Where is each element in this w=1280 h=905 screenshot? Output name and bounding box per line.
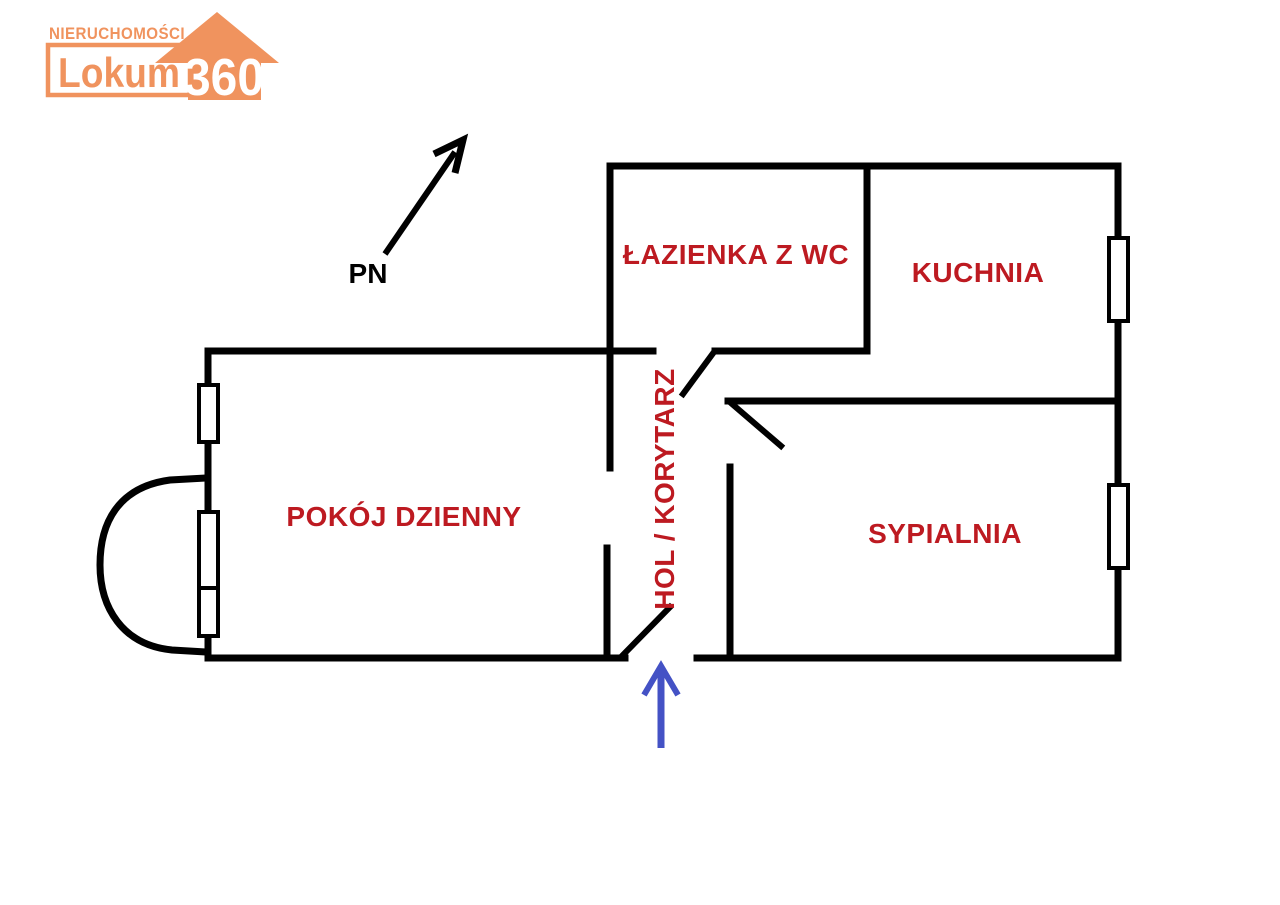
floorplan-canvas: NIERUCHOMOŚCI Lokum 360 PN ŁAZIENKA Z WC…: [0, 0, 1280, 905]
room-label-bathroom: ŁAZIENKA Z WC: [623, 239, 849, 271]
room-label-bedroom: SYPIALNIA: [868, 518, 1022, 550]
balcony-arc: [100, 478, 206, 652]
window-balcony-door-1: [199, 512, 218, 588]
logo-number-label: 360: [184, 49, 264, 107]
room-label-hall: HOL / KORYTARZ: [649, 368, 681, 609]
brand-logo: NIERUCHOMOŚCI Lokum 360: [0, 0, 300, 115]
window-kitchen: [1109, 238, 1128, 321]
room-label-kitchen: KUCHNIA: [912, 257, 1045, 289]
logo-name-label: Lokum: [58, 49, 180, 96]
entrance-arrow-icon: [644, 666, 678, 748]
room-label-living-room: POKÓJ DZIENNY: [286, 501, 521, 533]
window-balcony-door-2: [199, 588, 218, 636]
north-arrow-icon: [385, 140, 463, 254]
window-living-upper: [199, 385, 218, 442]
floorplan-drawing: [0, 0, 1280, 905]
door-swing-bathroom: [683, 352, 714, 394]
north-arrow-shaft: [385, 152, 455, 254]
north-label: PN: [349, 258, 388, 290]
window-bedroom: [1109, 485, 1128, 568]
logo-top-label: NIERUCHOMOŚCI: [49, 24, 185, 43]
door-swing-entrance: [621, 607, 670, 657]
door-swing-bedroom: [731, 403, 781, 446]
